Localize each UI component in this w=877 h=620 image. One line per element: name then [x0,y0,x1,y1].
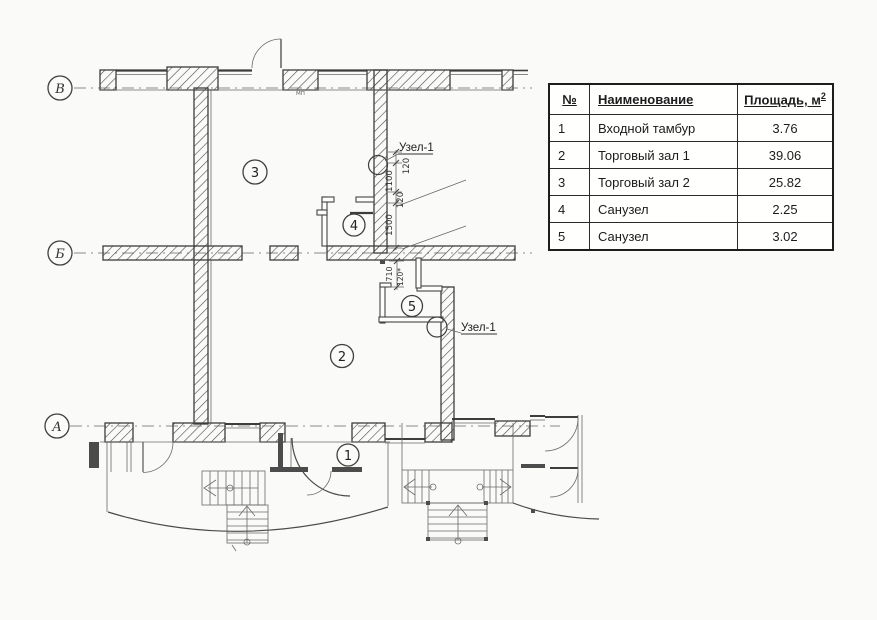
dim-710: 710 [385,266,394,281]
dim-120-upper: 120 [402,158,412,174]
room-num-cell: 5 [549,223,590,251]
room-area-cell: 39.06 [738,142,834,169]
facade-curves [108,503,599,551]
dim-120-lower: 120 [396,192,406,208]
uzel-1-label-bottom: Узел-1 [461,322,496,334]
axis-bubble-b: Б [48,241,72,265]
axis-bubble-v: В [48,76,72,100]
room-num-cell: 4 [549,196,590,223]
room-area-cell: 25.82 [738,169,834,196]
room-num-cell: 2 [549,142,590,169]
axis-label-v: В [54,82,65,97]
dim-120-star: 120* [396,268,405,286]
room-number-2: 2 [338,350,346,365]
room-number-5: 5 [408,300,416,315]
col-header-number: № [549,84,590,115]
col-header-name: Наименование [590,84,738,115]
room-area-cell: 3.02 [738,223,834,251]
room-name-cell: Входной тамбур [590,115,738,142]
uzel-1-label-top: Узел-1 [399,142,434,154]
window-mark-label: МП [296,91,305,97]
room-name-cell: Торговый зал 1 [590,142,738,169]
col-header-area: Площадь, м2 [738,84,834,115]
room-badge-5: 5 [402,296,423,317]
room-badge-2: 2 [331,345,354,368]
room-num-cell: 1 [549,115,590,142]
dim-1100: 1100 [385,170,395,192]
table-row: 1 Входной тамбур 3.76 [549,115,833,142]
room-badge-1: 1 [337,444,359,466]
room-num-cell: 3 [549,169,590,196]
dim-1500: 1500 [385,214,395,236]
scanned-floor-plan-page: 120 1100 120 1500 710 120* Узел-1 Узел-1… [0,0,877,620]
room-name-cell: Торговый зал 2 [590,169,738,196]
room-number-4: 4 [350,219,358,234]
room-name-cell: Санузел [590,223,738,251]
table-row: 3 Торговый зал 2 25.82 [549,169,833,196]
room-number-3: 3 [251,166,259,181]
axis-bubble-a: А [45,414,69,438]
table-row: 4 Санузел 2.25 [549,196,833,223]
dimension-chain-main: 120 1100 120 1500 [385,149,466,251]
axis-label-a: А [51,420,62,435]
table-header-row: № Наименование Площадь, м2 [549,84,833,115]
room-number-1: 1 [344,449,352,464]
room-area-table: № Наименование Площадь, м2 1 Входной там… [548,83,834,251]
stairs-right [402,470,513,544]
table-row: 2 Торговый зал 1 39.06 [549,142,833,169]
axis-label-b: Б [54,247,65,262]
stairs-left [202,471,268,545]
table-row: 5 Санузел 3.02 [549,223,833,251]
walls [100,67,530,442]
room-area-cell: 3.76 [738,115,834,142]
room-area-cell: 2.25 [738,196,834,223]
room-badge-3: 3 [243,160,267,184]
room-badge-4: 4 [343,214,365,236]
room-name-cell: Санузел [590,196,738,223]
